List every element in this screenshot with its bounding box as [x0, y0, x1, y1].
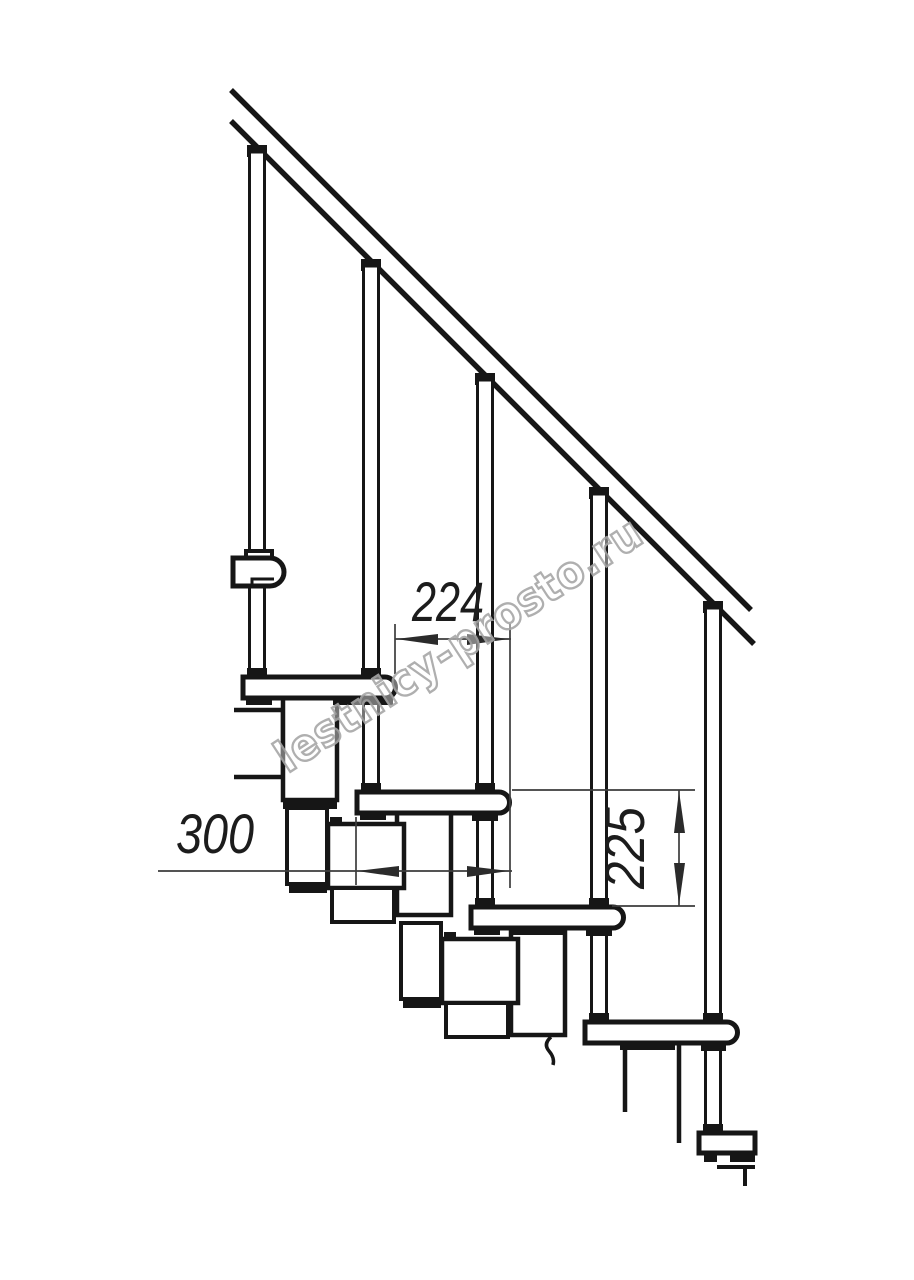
baluster-2-upper — [364, 266, 379, 679]
staircase-technical-drawing: 224 300 225 lestnicy-prosto.ru — [0, 0, 914, 1280]
dimension-depth-label: 300 — [176, 802, 254, 865]
tread-5-truncated — [699, 1133, 755, 1153]
staircase-drawing-canvas: 224 300 225 — [0, 0, 914, 1280]
baluster-3-lower — [478, 812, 493, 909]
clamp-1 — [332, 888, 394, 922]
dimension-riser-225: 225 — [512, 790, 695, 906]
baluster-4-lower — [592, 927, 607, 1024]
landing-cut — [234, 710, 283, 777]
tread-3 — [471, 907, 624, 928]
baluster-5-lower — [706, 1042, 721, 1135]
baluster-1 — [250, 152, 265, 680]
column-1 — [283, 698, 337, 800]
clamp-2 — [446, 1003, 508, 1037]
dimension-riser-label: 225 — [593, 806, 656, 890]
column-2-neck — [401, 923, 441, 999]
module-4-break — [625, 1043, 679, 1143]
baluster-2-lower — [364, 697, 379, 794]
bottom-break-line — [717, 1167, 755, 1186]
tread-2 — [357, 792, 510, 813]
baluster-5-upper — [706, 608, 721, 1024]
column-1-neck — [287, 808, 327, 884]
adjuster-box-2 — [442, 939, 518, 1003]
tread-1 — [243, 677, 396, 698]
adjuster-box-1 — [328, 824, 404, 888]
dimension-going-label: 224 — [411, 570, 484, 633]
tread-4 — [585, 1022, 738, 1043]
wall-bracket — [233, 551, 284, 586]
